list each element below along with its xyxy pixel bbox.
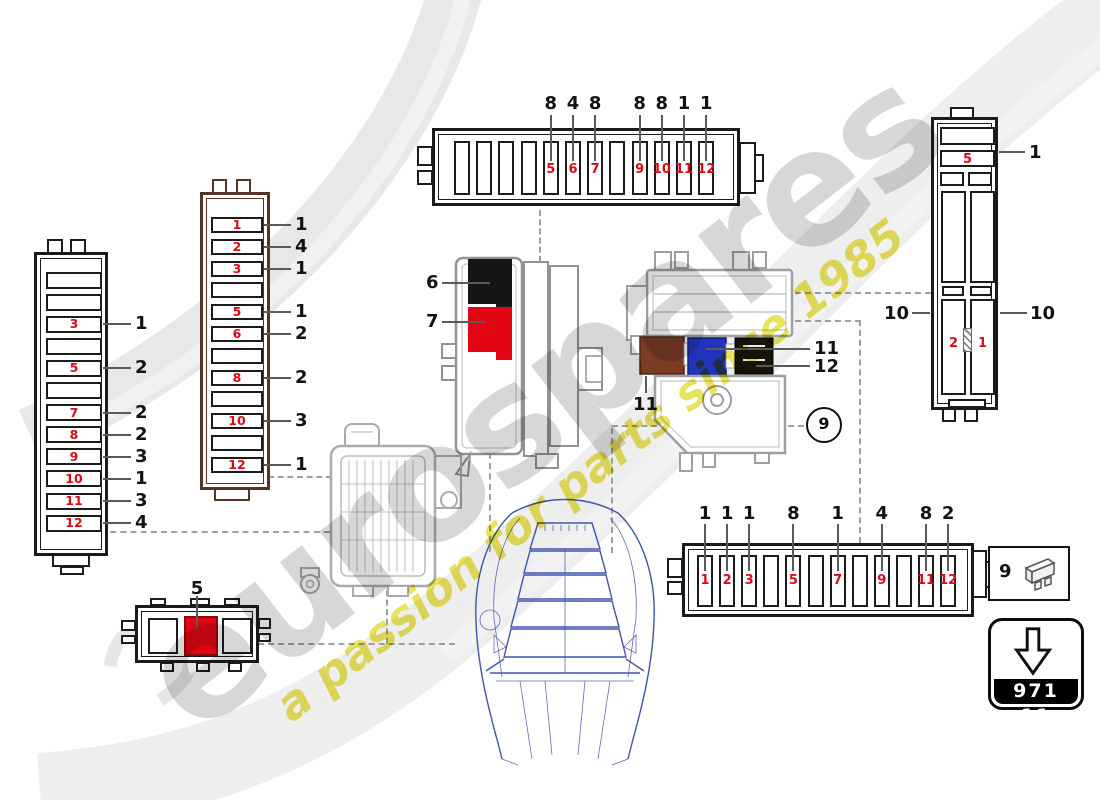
callout-line [103,367,131,369]
callout-line [264,464,291,466]
fuse-slot [46,294,102,311]
callout-right-left: 10 [884,303,909,324]
fuse-number: 11 [675,162,693,177]
fuse-number: 10 [46,471,102,486]
callout-line [661,115,663,161]
fuse-number: 5 [542,162,560,177]
fuse-slot [896,555,912,607]
fuse-number: 7 [829,573,847,588]
fuse-number: 6 [211,326,263,341]
callout-line [705,115,707,161]
callout-line [103,434,131,436]
fuse-number: 7 [586,162,604,177]
callout-line [947,524,949,571]
fuse-slot [521,141,537,195]
fuse-number: 3 [211,261,263,276]
fuse-number: 12 [939,573,957,588]
legend-ref: 9 [999,561,1012,582]
fuse-number: 10 [211,413,263,428]
callout-line [837,524,839,571]
fuse-slot [476,141,492,195]
callout-line [264,224,291,226]
fuse-number: 1 [211,217,263,232]
fuse-number: 10 [653,162,671,177]
callout-number: 4 [564,93,582,114]
fuse-number: 6 [564,162,582,177]
callout-line [683,115,685,161]
callout-number: 1 [135,468,148,489]
callout-number: 1 [295,258,308,279]
fuse-slot [148,618,178,654]
fuse-slot [940,127,995,145]
callout-right-top: 1 [1029,142,1042,163]
callout-number: 1 [718,503,736,524]
legend-box: 9 [988,546,1070,601]
callout-line [726,524,728,571]
fuse-slot [970,191,995,283]
callout-line [103,522,131,524]
fuse-number: 1 [696,573,714,588]
callout-number: 4 [295,236,308,257]
callout-line [103,478,131,480]
fuse-number: 12 [697,162,715,177]
fuse-slot [808,555,824,607]
callout-line [264,268,291,270]
callout-number: 1 [696,503,714,524]
fuse-strip-bottom: 112131587194118122 [682,543,974,617]
connector-dash [859,320,861,543]
fuse-number: 8 [211,370,263,385]
fuse-number: 8 [46,427,102,442]
fuse-slot [454,141,470,195]
fuse-slot [852,555,868,607]
callout-relay-brown: 11 [633,394,658,415]
callout-line [925,524,927,571]
fuse-slot [941,191,966,283]
fuse-number: 11 [46,493,102,508]
callout-number: 1 [135,313,148,334]
control-module-drawing [293,418,473,613]
callout-number: 2 [939,503,957,524]
fusebox-left: 3152728293101113124 [34,252,108,556]
fuse-slot [46,382,102,399]
fuse-number: 5 [940,152,995,167]
fuse-number: 3 [740,573,758,588]
connector-dash [258,643,455,645]
callout-right-right: 10 [1030,303,1055,324]
fuse-slot [942,286,964,296]
callout-number: 1 [295,301,308,322]
callout-relay-dark: 12 [814,356,839,377]
callout-line [103,412,131,414]
callout-number: 4 [135,512,148,533]
callout-line [264,333,291,335]
callout-aux: 5 [188,578,206,599]
fuse-slot [970,286,992,296]
fuse-slot [211,435,263,451]
fuse-number: 5 [784,573,802,588]
callout-number: 8 [784,503,802,524]
fuse-number: 3 [46,316,102,331]
callout-line [550,115,552,161]
callout-line [264,311,291,313]
callout-number: 3 [135,446,148,467]
callout-number: 2 [135,402,148,423]
fuse-number: 2 [718,573,736,588]
callout-number: 1 [697,93,715,114]
part-number: 971 11 [994,679,1078,704]
callout-number: 1 [829,503,847,524]
fusebox-parts-diagram: 3152728293101113124 112431516282103121 5… [0,0,1100,800]
fuse-number: 7 [46,405,102,420]
fuse-number: 9 [46,449,102,464]
car-outline-drawing [450,485,680,770]
relay-block-drawing [625,248,810,478]
fuse-number: 5 [211,304,263,319]
callout-number: 8 [542,93,560,114]
fuse-slot [940,172,964,186]
callout-number: 8 [653,93,671,114]
fuse-number: 11 [917,573,935,588]
fuse-slot [609,141,625,195]
fuse-slot [968,172,992,186]
callout-line [594,115,596,161]
fusebox-right: 5 2 1 [931,117,998,410]
fuse-slot-red [184,616,218,656]
callout-line [103,323,131,325]
fuse-slot [222,618,252,654]
fuse-number: 12 [46,515,102,530]
callout-line [264,246,291,248]
callout-number: 1 [675,93,693,114]
callout-line [264,377,291,379]
callout-line [704,524,706,571]
callout-relay-red: 7 [426,311,439,332]
callout-number: 4 [873,503,891,524]
fuse-number: 5 [46,360,102,375]
part-number-box: 971 11 [988,618,1084,710]
fuse-number: 2 [941,336,966,351]
fuse-number: 1 [970,336,995,351]
callout-relay-black: 6 [426,272,439,293]
callout-line [103,500,131,502]
callout-line [572,115,574,161]
circle-callout-9: 9 [806,407,842,443]
callout-number: 2 [135,424,148,445]
callout-number: 1 [740,503,758,524]
fuse-slot [211,348,263,364]
callout-number: 3 [135,490,148,511]
fuse-strip-top: 58647898108111121 [432,128,740,206]
fuse-slot [46,272,102,289]
callout-number: 8 [586,93,604,114]
fuse-slot [498,141,514,195]
fuse-number: 2 [211,239,263,254]
callout-line [792,524,794,571]
fuse-number: 12 [211,457,263,472]
callout-line [103,456,131,458]
fuse-slot [948,399,986,408]
fuse-slot [211,391,263,407]
fuse-slot [46,338,102,355]
callout-line [639,115,641,161]
callout-number: 2 [295,323,308,344]
callout-number: 8 [631,93,649,114]
fuse-number: 9 [631,162,649,177]
fusebox-inner: 112431516282103121 [200,192,270,490]
callout-number: 8 [917,503,935,524]
callout-line [264,420,291,422]
callout-number: 1 [295,214,308,235]
callout-line [748,524,750,571]
callout-number: 2 [295,367,308,388]
callout-line [881,524,883,571]
blade-fuse-icon [1016,552,1062,594]
fuse-slot [211,282,263,298]
fuse-number: 9 [873,573,891,588]
callout-number: 2 [135,357,148,378]
arrow-down-icon [1003,623,1063,681]
fuse-slot [763,555,779,607]
